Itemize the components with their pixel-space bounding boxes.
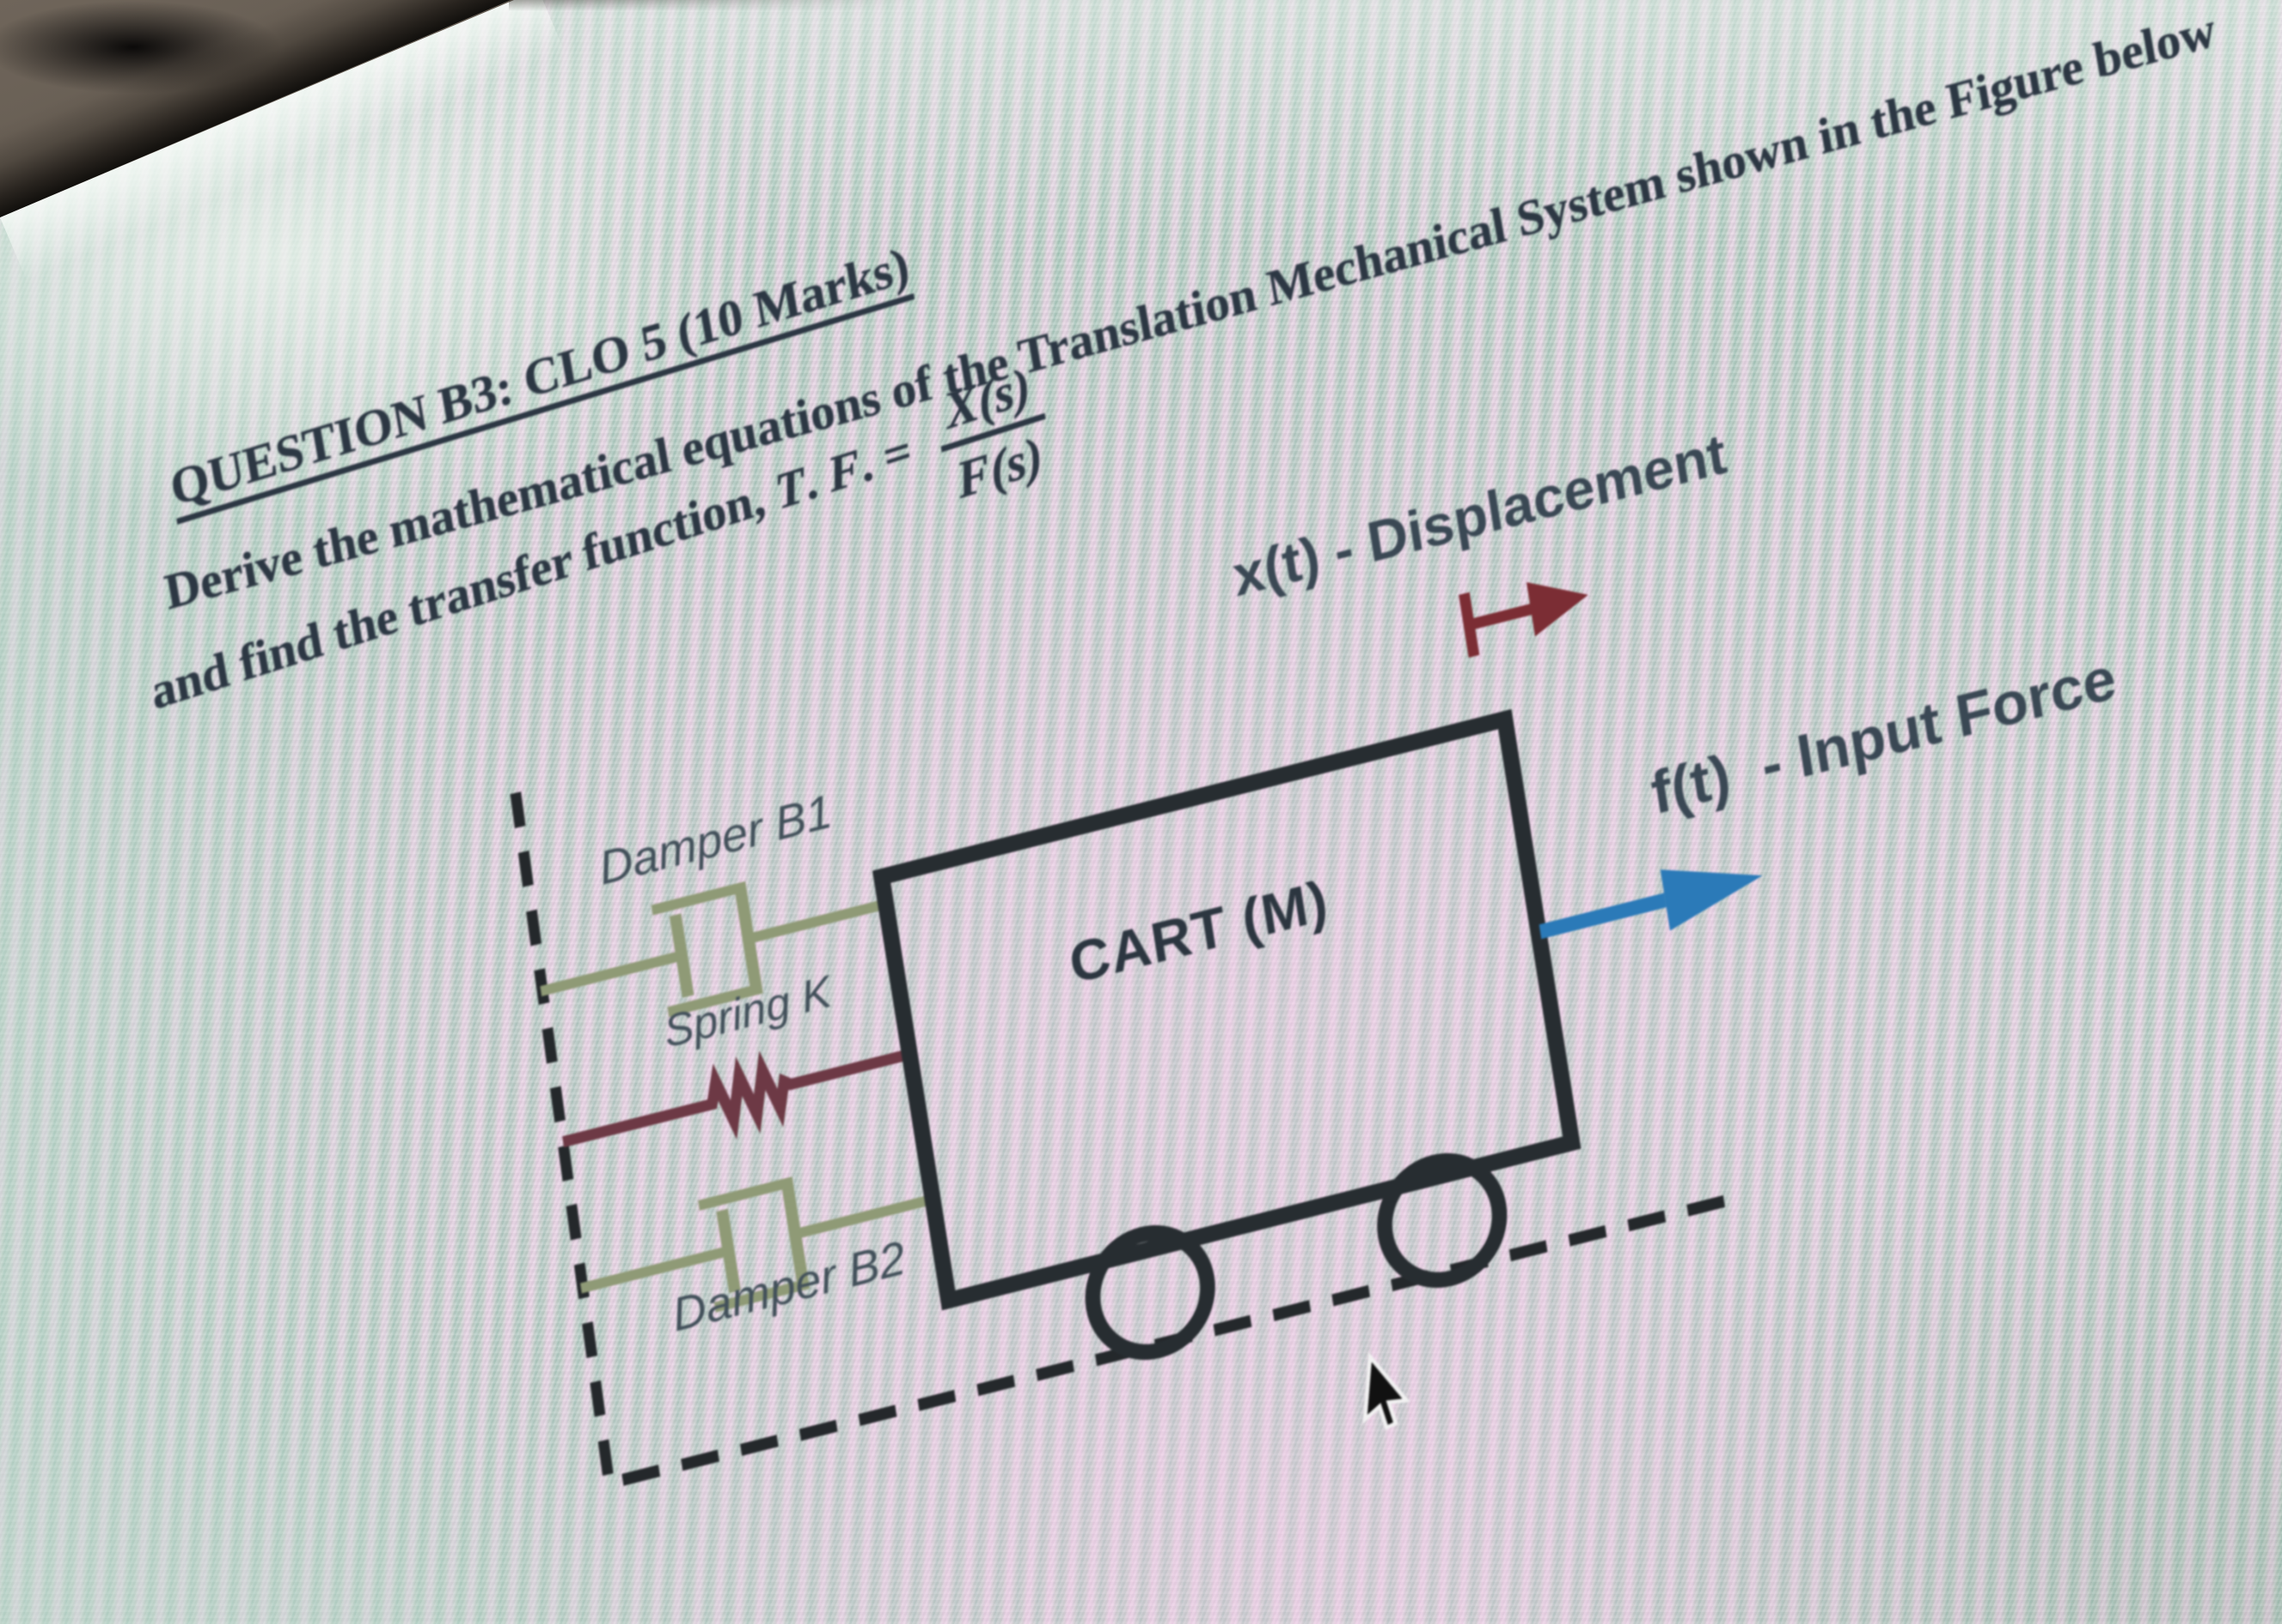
svg-text:Damper B2: Damper B2 [669,1230,909,1341]
svg-text:f(t) - Input Force: f(t) - Input Force [1647,644,2120,827]
svg-text:CART (M): CART (M) [1065,868,1332,996]
svg-text:Damper B1: Damper B1 [596,784,835,894]
svg-text:x(t) - Displacement: x(t) - Displacement [1228,421,1730,608]
